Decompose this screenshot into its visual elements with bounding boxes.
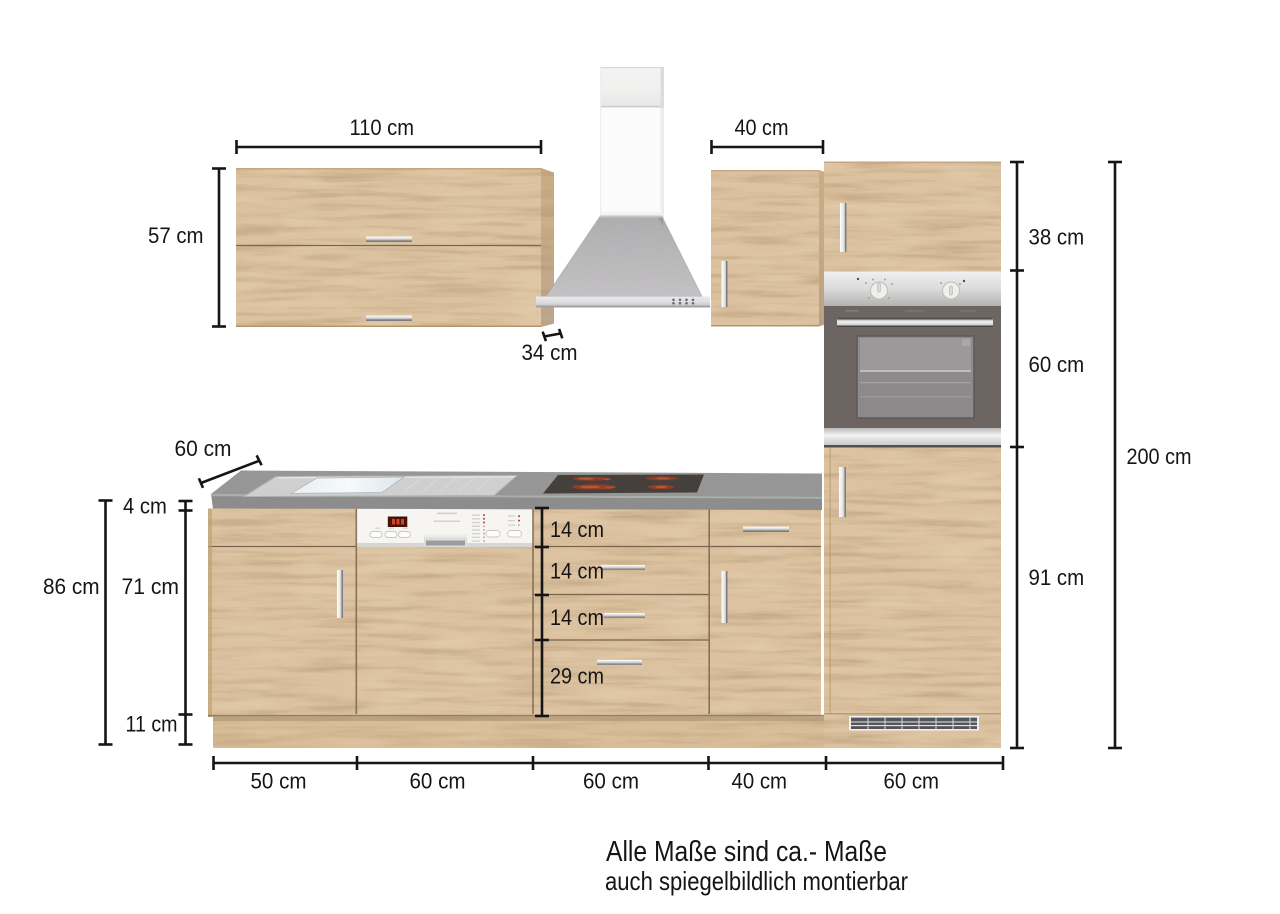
svg-text:40 cm: 40 cm — [732, 769, 788, 794]
svg-text:4 cm: 4 cm — [123, 494, 167, 519]
svg-text:60 cm: 60 cm — [583, 769, 639, 794]
svg-text:auch spiegelbildlich montierba: auch spiegelbildlich montierbar — [605, 866, 908, 896]
svg-text:38 cm: 38 cm — [1029, 225, 1085, 250]
svg-text:57 cm: 57 cm — [148, 223, 204, 248]
svg-text:200 cm: 200 cm — [1127, 444, 1192, 469]
svg-text:110 cm: 110 cm — [350, 115, 415, 140]
svg-text:11 cm: 11 cm — [126, 712, 178, 737]
svg-text:34 cm: 34 cm — [522, 340, 578, 365]
svg-text:29 cm: 29 cm — [550, 664, 604, 689]
svg-text:60 cm: 60 cm — [884, 769, 940, 794]
svg-text:50 cm: 50 cm — [251, 769, 307, 794]
svg-text:60 cm: 60 cm — [175, 436, 232, 461]
svg-text:60 cm: 60 cm — [1029, 352, 1085, 377]
svg-text:91 cm: 91 cm — [1029, 565, 1085, 590]
svg-text:14 cm: 14 cm — [550, 605, 604, 630]
svg-text:40 cm: 40 cm — [735, 115, 789, 140]
svg-text:71 cm: 71 cm — [122, 574, 180, 599]
svg-text:Alle Maße sind ca.- Maße: Alle Maße sind ca.- Maße — [606, 836, 887, 868]
svg-text:86 cm: 86 cm — [43, 574, 100, 599]
svg-text:14 cm: 14 cm — [550, 517, 604, 542]
svg-text:60 cm: 60 cm — [410, 769, 466, 794]
svg-text:14 cm: 14 cm — [550, 559, 604, 584]
